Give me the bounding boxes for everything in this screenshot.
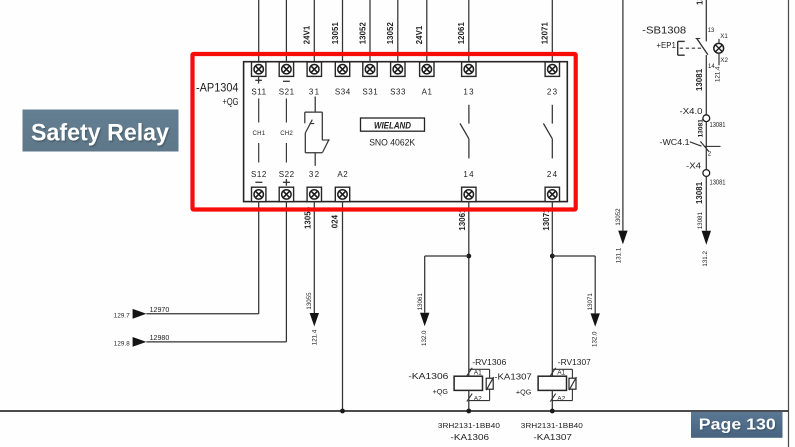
svg-text:-X4: -X4 bbox=[686, 161, 702, 170]
svg-text:12980: 12980 bbox=[150, 333, 170, 342]
svg-text:121.4: 121.4 bbox=[312, 329, 319, 345]
svg-text:A1: A1 bbox=[474, 369, 482, 376]
svg-text:13055: 13055 bbox=[306, 292, 313, 310]
svg-text:13052: 13052 bbox=[386, 22, 395, 45]
svg-text:13081: 13081 bbox=[695, 68, 704, 91]
svg-text:12970: 12970 bbox=[150, 305, 170, 314]
svg-text:S31: S31 bbox=[362, 88, 378, 97]
svg-text:13061: 13061 bbox=[417, 293, 424, 311]
svg-text:-WC4.1: -WC4.1 bbox=[660, 138, 690, 147]
svg-text:-RV1307: -RV1307 bbox=[558, 358, 592, 367]
svg-text:13071: 13071 bbox=[587, 293, 594, 311]
svg-text:13052: 13052 bbox=[615, 208, 622, 226]
svg-text:32: 32 bbox=[309, 170, 321, 179]
svg-text:24V1: 24V1 bbox=[303, 25, 312, 44]
svg-text:X1: X1 bbox=[720, 33, 728, 40]
svg-text:-KA1307: -KA1307 bbox=[533, 432, 572, 442]
svg-text:-KA1306: -KA1306 bbox=[451, 432, 490, 442]
svg-text:13: 13 bbox=[463, 88, 475, 97]
svg-text:+QG: +QG bbox=[433, 387, 449, 396]
svg-text:SNO 4062K: SNO 4062K bbox=[369, 137, 416, 148]
svg-text:+QG: +QG bbox=[223, 96, 239, 108]
svg-text:13081: 13081 bbox=[710, 122, 726, 129]
svg-text:-X4.0: -X4.0 bbox=[680, 107, 704, 116]
svg-text:13081: 13081 bbox=[696, 0, 705, 5]
svg-text:A1: A1 bbox=[422, 88, 433, 97]
svg-text:3RH2131-1BB40: 3RH2131-1BB40 bbox=[521, 423, 583, 430]
svg-text:A2: A2 bbox=[337, 170, 348, 179]
svg-text:23: 23 bbox=[547, 88, 559, 97]
svg-text:-KA1306: -KA1306 bbox=[408, 371, 448, 381]
svg-text:A1: A1 bbox=[557, 369, 565, 376]
svg-text:129.7: 129.7 bbox=[114, 312, 130, 319]
svg-text:S12: S12 bbox=[251, 170, 267, 179]
svg-text:A2: A2 bbox=[557, 396, 565, 403]
svg-text:S21: S21 bbox=[279, 88, 295, 97]
svg-text:131.1: 131.1 bbox=[616, 247, 623, 263]
svg-text:129.8: 129.8 bbox=[114, 341, 130, 348]
svg-text:121.4: 121.4 bbox=[715, 66, 722, 82]
svg-text:024: 024 bbox=[331, 214, 340, 228]
svg-text:Page 130: Page 130 bbox=[699, 417, 776, 434]
svg-text:24: 24 bbox=[547, 170, 559, 179]
svg-text:31: 31 bbox=[309, 88, 321, 97]
svg-text:WIELAND: WIELAND bbox=[374, 121, 411, 131]
svg-text:S22: S22 bbox=[279, 170, 295, 179]
svg-text:-AP1304: -AP1304 bbox=[196, 81, 239, 95]
svg-text:131.2: 131.2 bbox=[702, 251, 709, 267]
svg-text:+QG: +QG bbox=[516, 387, 532, 396]
svg-text:13081: 13081 bbox=[698, 119, 705, 138]
svg-text:132.0: 132.0 bbox=[421, 330, 428, 346]
svg-text:X2: X2 bbox=[720, 57, 728, 64]
svg-text:13: 13 bbox=[708, 28, 715, 34]
svg-text:2: 2 bbox=[708, 151, 712, 158]
svg-text:13081: 13081 bbox=[697, 212, 704, 230]
svg-text:13081: 13081 bbox=[695, 181, 704, 204]
svg-text:S33: S33 bbox=[390, 88, 406, 97]
svg-text:13081: 13081 bbox=[710, 179, 726, 186]
svg-text:CH2: CH2 bbox=[280, 130, 293, 137]
svg-text:-RV1306: -RV1306 bbox=[472, 358, 507, 367]
svg-text:13052: 13052 bbox=[358, 22, 367, 45]
svg-text:24V1: 24V1 bbox=[415, 25, 424, 44]
svg-text:+EP1: +EP1 bbox=[656, 41, 676, 50]
svg-text:3RH2131-1BB40: 3RH2131-1BB40 bbox=[438, 423, 500, 430]
svg-text:14: 14 bbox=[463, 170, 475, 179]
svg-text:132.0: 132.0 bbox=[592, 331, 599, 347]
svg-text:13051: 13051 bbox=[331, 22, 340, 45]
svg-text:CH1: CH1 bbox=[253, 130, 266, 137]
svg-text:12071: 12071 bbox=[541, 22, 550, 45]
svg-text:-KA1307: -KA1307 bbox=[494, 371, 532, 381]
svg-text:12061: 12061 bbox=[457, 22, 466, 45]
svg-text:S34: S34 bbox=[335, 88, 351, 97]
svg-text:Safety Relay: Safety Relay bbox=[31, 120, 169, 147]
svg-text:S11: S11 bbox=[251, 88, 266, 97]
svg-text:A2: A2 bbox=[474, 396, 482, 403]
svg-text:-SB1308: -SB1308 bbox=[642, 26, 687, 37]
